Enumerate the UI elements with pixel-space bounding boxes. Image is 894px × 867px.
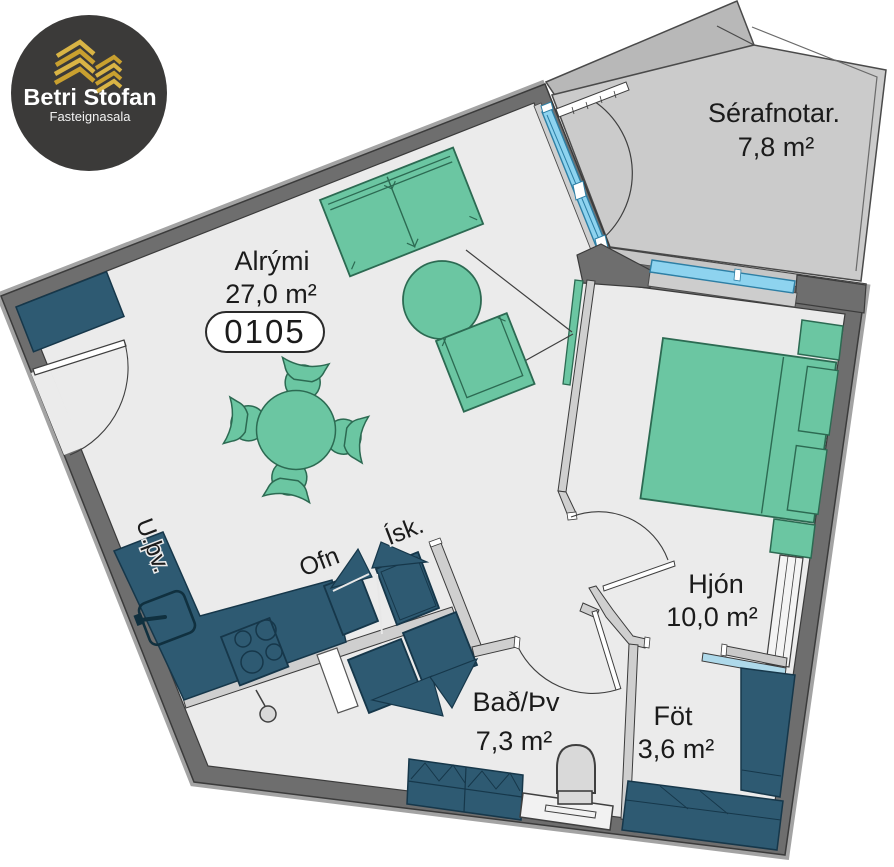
svg-text:Hjón: Hjón — [688, 569, 744, 599]
svg-text:7,3 m²: 7,3 m² — [476, 726, 553, 756]
svg-text:Betri Stofan: Betri Stofan — [23, 84, 156, 110]
svg-text:10,0 m²: 10,0 m² — [666, 602, 758, 632]
svg-text:Sérafnotar.: Sérafnotar. — [708, 98, 840, 128]
svg-text:7,8 m²: 7,8 m² — [738, 132, 815, 162]
svg-text:Föt: Föt — [653, 701, 693, 731]
svg-text:Alrými: Alrými — [235, 246, 310, 276]
svg-text:0105: 0105 — [224, 313, 305, 350]
svg-text:3,6 m²: 3,6 m² — [638, 734, 715, 764]
svg-text:27,0 m²: 27,0 m² — [225, 279, 317, 309]
svg-text:Fasteignasala: Fasteignasala — [50, 109, 132, 124]
svg-text:Bað/Þv: Bað/Þv — [472, 687, 560, 717]
